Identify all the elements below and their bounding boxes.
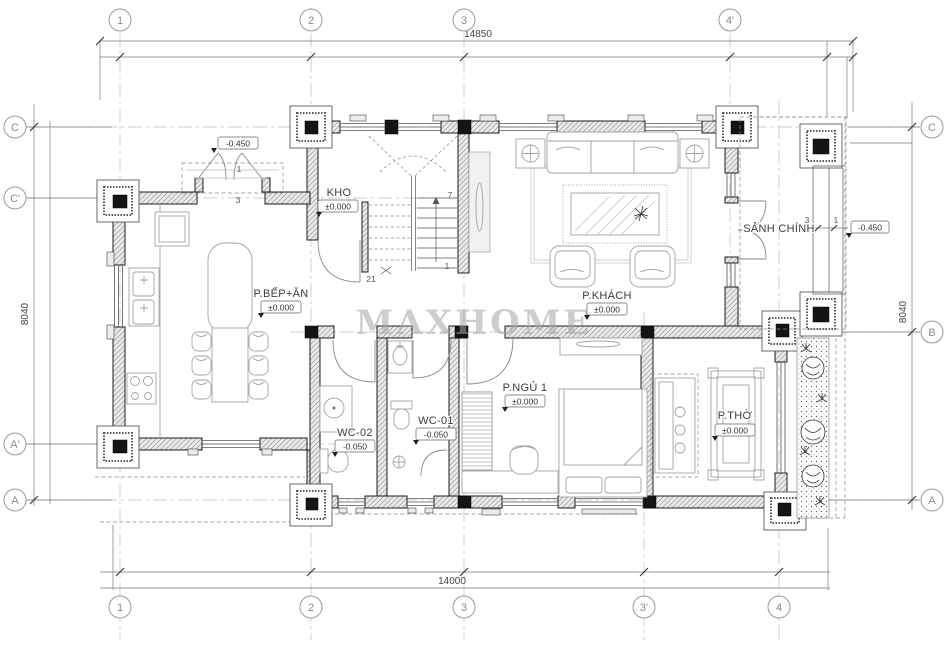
column-top-mullion: [385, 120, 398, 134]
dim-bottom: 14000: [438, 576, 466, 587]
svg-text:-0.450: -0.450: [226, 139, 250, 149]
window-kitchen-south: [202, 441, 260, 448]
plinth-4pc: [716, 106, 758, 148]
svg-text:1: 1: [117, 602, 123, 614]
axis-top-1: 1: [109, 9, 131, 31]
svg-text:P.BẾP+ĂN: P.BẾP+ĂN: [253, 287, 308, 300]
axis-right-b: B: [921, 321, 943, 343]
door-wc01-inner: [421, 450, 447, 476]
axis-top-2: 2: [300, 9, 322, 31]
understair-cabinet: [469, 152, 490, 252]
label-bep-an: P.BẾP+ĂN ±0.000: [253, 287, 308, 318]
svg-text:P.NGỦ 1: P.NGỦ 1: [503, 381, 548, 394]
svg-text:-0.450: -0.450: [858, 223, 882, 233]
svg-text:2: 2: [308, 15, 314, 27]
svg-text:±0.000: ±0.000: [325, 202, 351, 212]
wardrobe: [462, 392, 492, 470]
column-axis3p-a: [643, 496, 656, 508]
plinth-porch-top: [800, 124, 842, 168]
svg-text:2: 2: [308, 602, 314, 614]
svg-text:KHO: KHO: [327, 187, 352, 199]
garden-strip: [797, 338, 836, 518]
column-axis3p-b: [641, 326, 654, 338]
stair-step-count: 21: [366, 274, 376, 284]
svg-text:A: A: [928, 495, 936, 507]
svg-text:3: 3: [461, 15, 467, 27]
kitchen-furniture: [127, 204, 268, 438]
coffee-table: [563, 185, 667, 243]
plinth-porch-bottom: [800, 292, 842, 336]
side-table-right: [680, 139, 709, 168]
door-wc02: [333, 340, 375, 382]
bedroom-furniture: [462, 338, 698, 497]
svg-text:4: 4: [776, 602, 782, 614]
window-ptho-east: [777, 362, 785, 473]
kitchen-sink: [129, 268, 159, 326]
axis-bottom-4: 4: [768, 596, 790, 618]
entry-level-tag: -0.450: [211, 137, 258, 153]
svg-text:C: C: [11, 122, 19, 134]
armchair-right: [630, 246, 675, 287]
plinth-2c: [290, 106, 332, 148]
svg-text:C': C': [10, 193, 20, 205]
desk: [462, 471, 558, 493]
column-axis2-b: [305, 326, 318, 338]
wc01-drain: [393, 456, 405, 468]
stair-step-top: 7: [448, 190, 453, 200]
shrub-1: [802, 357, 824, 379]
axis-left-cp: C': [4, 187, 26, 209]
svg-text:3': 3': [640, 602, 648, 614]
svg-text:4': 4': [726, 15, 734, 27]
label-kho: KHO ±0.000: [316, 187, 358, 217]
door-kho: [318, 240, 360, 282]
desk-chair: [510, 446, 538, 474]
porch-marker-left: 3: [805, 215, 810, 225]
axis-left-c: C: [4, 116, 26, 138]
porch-marker-right: 1: [834, 215, 839, 225]
fridge: [155, 212, 189, 246]
plinth-1ap: [97, 426, 139, 468]
axis-left-a: A: [4, 489, 26, 511]
svg-text:-0.050: -0.050: [424, 430, 448, 440]
svg-text:-0.050: -0.050: [343, 442, 367, 452]
dining-table: [212, 328, 248, 402]
bed: [559, 389, 647, 497]
label-ngu1: P.NGỦ 1 ±0.000: [502, 381, 547, 412]
axis-bottom-2: 2: [300, 596, 322, 618]
svg-text:3: 3: [461, 602, 467, 614]
stove: [127, 373, 156, 404]
window-kitchen-west: [115, 265, 123, 327]
axis-bottom-1: 1: [109, 596, 131, 618]
floor-plan-sheet: 14850 14000 8040 8040: [0, 0, 948, 649]
svg-text:P.THỜ: P.THỜ: [718, 409, 753, 422]
living-furniture: [516, 132, 709, 287]
stair-step-bottom: 1: [445, 261, 450, 271]
shrub-2: [801, 420, 825, 444]
sofa: [547, 132, 678, 173]
svg-text:±0.000: ±0.000: [512, 397, 538, 407]
svg-text:WC-02: WC-02: [337, 427, 373, 439]
axis-left-ap: A': [4, 433, 26, 455]
shrub-3: [802, 465, 824, 487]
axis-bottom-3: 3: [453, 596, 475, 618]
axis-top-4p: 4': [719, 9, 741, 31]
door-bedroom: [467, 338, 513, 384]
wc02-basin: [320, 386, 352, 432]
svg-text:1: 1: [117, 15, 123, 27]
svg-text:B: B: [928, 327, 935, 339]
axis-right-a: A: [921, 489, 943, 511]
side-table-left: [516, 139, 545, 168]
staircase: 7 1 21: [366, 136, 490, 284]
svg-text:±0.000: ±0.000: [268, 303, 294, 313]
column-axis3-a: [458, 496, 471, 508]
column-axis3-c: [458, 120, 471, 134]
svg-text:±0.000: ±0.000: [722, 426, 748, 436]
wc01-basin: [388, 341, 412, 373]
plinth-1cp: [97, 180, 139, 222]
svg-text:WC-01: WC-01: [418, 415, 454, 427]
label-tho: P.THỜ ±0.000: [712, 409, 755, 441]
axis-right-c: C: [921, 116, 943, 138]
door-wc01: [413, 340, 451, 378]
svg-text:P.KHÁCH: P.KHÁCH: [582, 289, 632, 302]
axis-top-3: 3: [453, 9, 475, 31]
label-khach: P.KHÁCH ±0.000: [582, 289, 632, 320]
watermark: MAXHOME: [356, 303, 593, 343]
svg-text:C: C: [928, 122, 936, 134]
sidelights-east: [727, 173, 735, 287]
dim-right: 8040: [898, 300, 909, 323]
axis-bottom-3p: 3': [633, 596, 655, 618]
svg-text:±0.000: ±0.000: [594, 305, 620, 315]
dim-left: 8040: [20, 302, 31, 325]
door-entry-double: [197, 153, 263, 180]
entry-step-marker: 3: [236, 195, 241, 205]
plinth-2a: [290, 484, 332, 526]
kitchen-island: [208, 243, 252, 333]
armchair-left: [550, 246, 595, 287]
floor-plan-drawing: 14850 14000 8040 8040: [0, 0, 948, 649]
tv-console: [651, 374, 698, 477]
entry-door-marker: 1: [237, 164, 242, 174]
svg-text:A: A: [11, 495, 19, 507]
svg-text:A': A': [10, 439, 19, 451]
wc01-toilet: [391, 401, 412, 429]
plinth-4b: [762, 311, 802, 351]
